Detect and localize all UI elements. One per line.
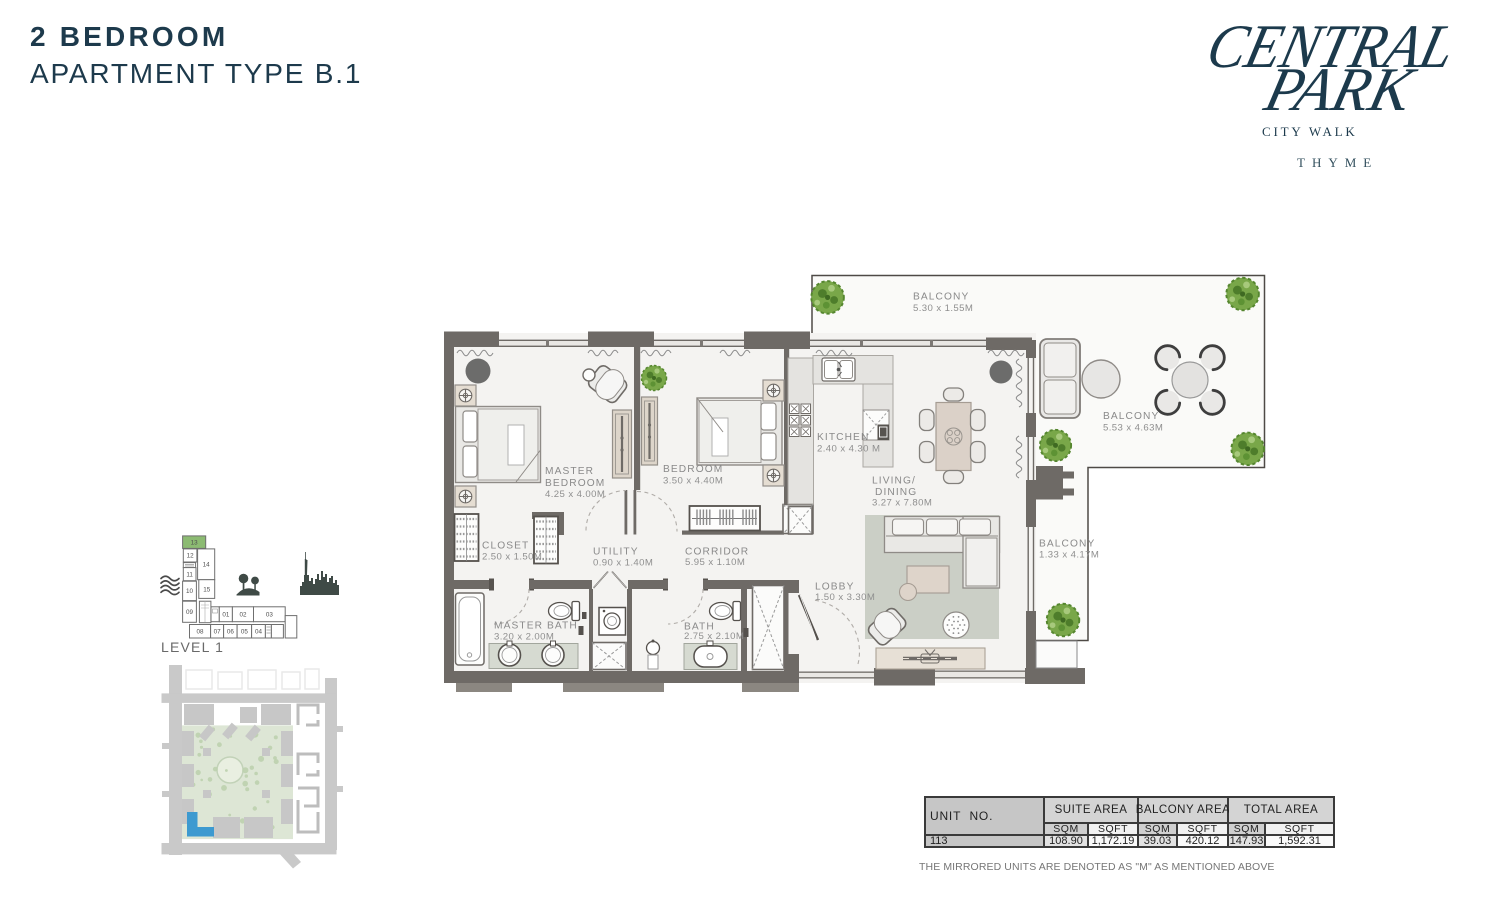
svg-text:LIVING/: LIVING/	[872, 476, 916, 487]
svg-text:07: 07	[214, 628, 222, 635]
svg-text:CLOSET: CLOSET	[482, 541, 529, 552]
svg-text:5.53 x 4.63M: 5.53 x 4.63M	[1103, 423, 1163, 434]
svg-text:LOBBY: LOBBY	[815, 582, 854, 593]
svg-text:10: 10	[186, 588, 194, 595]
svg-text:3.50 x 4.40M: 3.50 x 4.40M	[663, 476, 723, 487]
svg-text:MASTER BATH: MASTER BATH	[494, 621, 578, 632]
svg-text:BEDROOM: BEDROOM	[545, 478, 605, 489]
svg-text:BEDROOM: BEDROOM	[663, 464, 723, 475]
svg-text:02: 02	[239, 611, 247, 618]
svg-text:06: 06	[227, 628, 235, 635]
svg-text:3.27 x 7.80M: 3.27 x 7.80M	[872, 498, 932, 509]
svg-text:0.90 x 1.40M: 0.90 x 1.40M	[593, 558, 653, 569]
svg-text:08: 08	[197, 628, 205, 635]
svg-text:LEVEL 1: LEVEL 1	[161, 639, 224, 655]
svg-text:3.20 x 2.00M: 3.20 x 2.00M	[494, 632, 554, 643]
svg-text:UTILITY: UTILITY	[593, 547, 639, 558]
svg-text:09: 09	[186, 609, 194, 616]
svg-text:5.95 x 1.10M: 5.95 x 1.10M	[685, 557, 745, 568]
svg-text:01: 01	[222, 611, 230, 618]
svg-text:4.25 x 4.00M: 4.25 x 4.00M	[545, 489, 605, 500]
svg-text:04: 04	[255, 628, 263, 635]
svg-text:1.33 x 4.17M: 1.33 x 4.17M	[1039, 550, 1099, 561]
svg-text:12: 12	[187, 553, 195, 560]
svg-text:03: 03	[266, 611, 274, 618]
svg-text:2.75 x 2.10M: 2.75 x 2.10M	[684, 631, 744, 642]
svg-text:BALCONY: BALCONY	[913, 292, 969, 303]
svg-text:CORRIDOR: CORRIDOR	[685, 547, 749, 558]
svg-text:KITCHEN: KITCHEN	[817, 432, 869, 443]
svg-text:BALCONY: BALCONY	[1039, 539, 1095, 550]
svg-text:1.50 x 3.30M: 1.50 x 3.30M	[815, 592, 875, 603]
svg-text:BALCONY: BALCONY	[1103, 411, 1159, 422]
svg-text:2.40 x 4.30 M: 2.40 x 4.30 M	[817, 444, 880, 455]
svg-text:2.50 x 1.50M: 2.50 x 1.50M	[482, 552, 542, 563]
svg-text:11: 11	[186, 571, 193, 578]
svg-text:15: 15	[203, 586, 211, 593]
svg-text:MASTER: MASTER	[545, 466, 594, 477]
svg-text:05: 05	[241, 628, 249, 635]
svg-text:13: 13	[191, 539, 199, 546]
svg-text:5.30 x 1.55M: 5.30 x 1.55M	[913, 303, 973, 314]
svg-text:DINING: DINING	[875, 487, 917, 498]
svg-text:14: 14	[203, 562, 211, 569]
